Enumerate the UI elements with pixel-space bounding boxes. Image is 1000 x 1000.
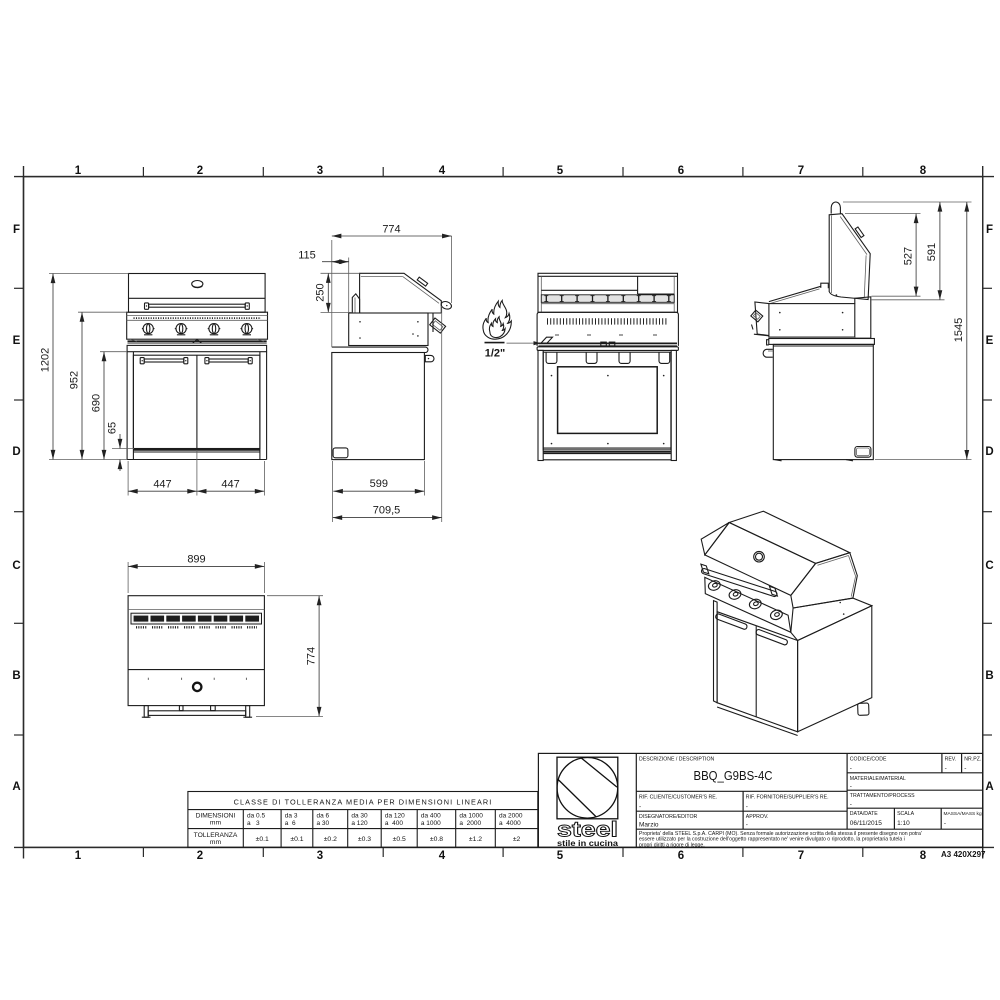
svg-text:-: - [964, 765, 966, 772]
svg-text:SCALA: SCALA [897, 811, 915, 817]
svg-text:447: 447 [221, 479, 239, 491]
svg-text:F: F [13, 224, 20, 236]
svg-text:stile in cucina: stile in cucina [557, 839, 619, 848]
svg-text:±0.1: ±0.1 [256, 836, 269, 843]
svg-text:6: 6 [678, 850, 684, 862]
svg-text:690: 690 [91, 394, 103, 412]
svg-text:115: 115 [298, 250, 316, 262]
svg-text:NR.PZ.: NR.PZ. [964, 756, 981, 762]
svg-text:06/11/2015: 06/11/2015 [850, 820, 882, 827]
svg-text:a 1000: a 1000 [421, 820, 441, 827]
svg-text:±0.1: ±0.1 [290, 836, 303, 843]
svg-text:BBQ_G9BS-4C: BBQ_G9BS-4C [694, 769, 773, 783]
svg-text:da 30: da 30 [351, 813, 368, 820]
svg-text:591: 591 [926, 243, 938, 261]
svg-text:B: B [985, 670, 993, 682]
svg-text:Marzio: Marzio [639, 822, 659, 829]
svg-text:C: C [12, 560, 20, 572]
svg-text:a 400: a 400 [385, 820, 403, 827]
svg-text:CLASSE DI TOLLERANZA MEDIA PER: CLASSE DI TOLLERANZA MEDIA PER DIMENSION… [234, 797, 493, 806]
svg-text:a 120: a 120 [351, 820, 368, 827]
svg-text:a 4000: a 4000 [499, 820, 521, 827]
svg-text:RIF. FORNITORE/SUPPLIER'S RE.: RIF. FORNITORE/SUPPLIER'S RE. [746, 794, 829, 800]
svg-text:-: - [746, 803, 748, 810]
svg-text:a 2000: a 2000 [459, 820, 481, 827]
svg-text:1/2": 1/2" [485, 348, 506, 360]
svg-text:DATA/DATE: DATA/DATE [850, 811, 878, 817]
svg-text:5: 5 [557, 165, 564, 177]
svg-text:-: - [944, 820, 946, 827]
svg-text:D: D [985, 446, 993, 458]
svg-text:da 120: da 120 [385, 813, 405, 820]
svg-text:F: F [986, 224, 993, 236]
svg-text:709,5: 709,5 [373, 505, 401, 517]
svg-text:REV.: REV. [945, 756, 957, 762]
svg-text:527: 527 [902, 247, 914, 265]
svg-text:a 6: a 6 [285, 820, 296, 827]
svg-text:8: 8 [920, 165, 927, 177]
svg-text:1: 1 [75, 165, 82, 177]
svg-text:A: A [985, 781, 993, 793]
svg-text:-: - [850, 765, 852, 772]
svg-text:774: 774 [382, 224, 400, 236]
svg-text:2: 2 [197, 165, 203, 177]
svg-text:-: - [945, 765, 947, 772]
svg-text:774: 774 [305, 647, 317, 665]
svg-text:A: A [12, 781, 20, 793]
svg-text:952: 952 [69, 371, 81, 389]
svg-text:7: 7 [798, 850, 804, 862]
svg-text:1202: 1202 [40, 348, 52, 372]
svg-text:E: E [986, 335, 994, 347]
svg-text:±0.2: ±0.2 [324, 836, 337, 843]
svg-text:599: 599 [370, 478, 388, 490]
svg-text:APPROV.: APPROV. [746, 814, 769, 820]
svg-text:-: - [850, 783, 852, 790]
svg-text:1:10: 1:10 [897, 820, 910, 827]
svg-text:A3 420X297: A3 420X297 [941, 850, 986, 859]
svg-text:-: - [746, 822, 748, 829]
svg-text:4: 4 [439, 850, 446, 862]
svg-text:±0.5: ±0.5 [393, 836, 406, 843]
svg-text:da 2000: da 2000 [499, 813, 523, 820]
svg-text:mm: mm [210, 820, 222, 827]
svg-text:-: - [850, 801, 852, 808]
svg-text:propri diritti a rigore di leg: propri diritti a rigore di legge. [639, 842, 705, 848]
svg-text:da 3: da 3 [285, 813, 298, 820]
svg-text:±0.3: ±0.3 [358, 836, 371, 843]
svg-text:3: 3 [317, 850, 323, 862]
svg-text:da 6: da 6 [317, 813, 330, 820]
svg-text:65: 65 [107, 422, 119, 434]
svg-text:MATERIALE/MATERIAL: MATERIALE/MATERIAL [850, 776, 906, 782]
svg-text:2: 2 [197, 850, 203, 862]
svg-text:mm: mm [210, 839, 222, 846]
svg-text:DIMENSIONI: DIMENSIONI [196, 813, 236, 820]
svg-text:DISEGNATORE/EDITOR: DISEGNATORE/EDITOR [639, 814, 697, 820]
svg-text:±2: ±2 [513, 836, 521, 843]
svg-text:±0.8: ±0.8 [430, 836, 443, 843]
svg-text:B: B [12, 670, 20, 682]
svg-text:RIF. CLIENTE/CUSTOMER'S RE.: RIF. CLIENTE/CUSTOMER'S RE. [639, 794, 717, 800]
svg-text:1: 1 [75, 850, 82, 862]
svg-text:a 3: a 3 [247, 820, 260, 827]
svg-text:DESCRIZIONE / DESCRIPTION: DESCRIZIONE / DESCRIPTION [639, 756, 714, 762]
svg-text:MASSA/MASS kg: MASSA/MASS kg [944, 811, 982, 817]
svg-text:899: 899 [187, 553, 205, 565]
svg-text:a 30: a 30 [317, 820, 330, 827]
svg-text:E: E [13, 335, 21, 347]
svg-text:da 400: da 400 [421, 813, 441, 820]
svg-text:5: 5 [557, 850, 564, 862]
svg-text:CODICE/CODE: CODICE/CODE [850, 756, 887, 762]
svg-text:TRATTAMENTO/PROCESS: TRATTAMENTO/PROCESS [850, 793, 915, 799]
svg-text:da 0.5: da 0.5 [247, 813, 265, 820]
svg-text:4: 4 [439, 165, 446, 177]
svg-text:447: 447 [153, 479, 171, 491]
svg-text:C: C [985, 560, 993, 572]
svg-text:8: 8 [920, 850, 927, 862]
svg-text:6: 6 [678, 165, 684, 177]
svg-text:D: D [12, 446, 20, 458]
svg-text:1545: 1545 [953, 318, 965, 342]
svg-text:7: 7 [798, 165, 804, 177]
svg-text:da 1000: da 1000 [459, 813, 483, 820]
svg-text:TOLLERANZA: TOLLERANZA [194, 832, 238, 839]
svg-text:3: 3 [317, 165, 323, 177]
svg-text:±1.2: ±1.2 [469, 836, 482, 843]
svg-text:250: 250 [315, 283, 327, 301]
svg-text:-: - [639, 803, 641, 810]
